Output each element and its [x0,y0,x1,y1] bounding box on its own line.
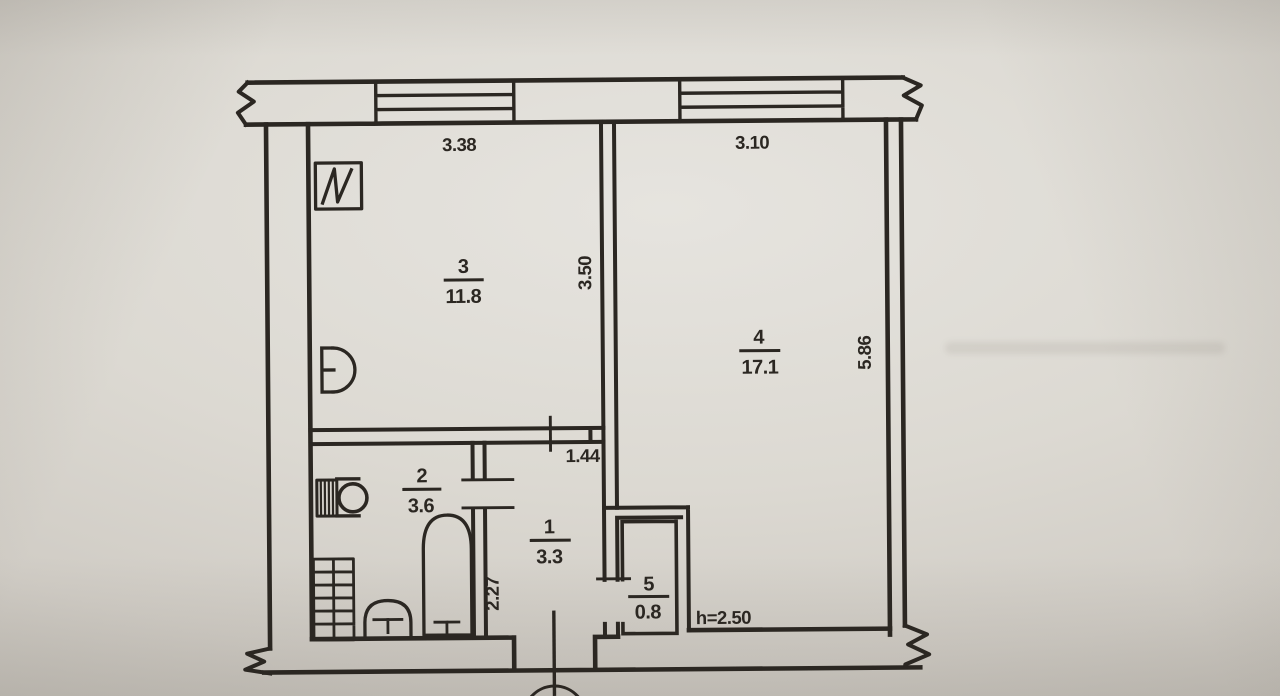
partition-room3-hall [310,428,603,444]
room2-area: 3.6 [408,495,435,517]
room-label-5: 5 0.8 [630,573,668,623]
door-jambs-room2 [463,480,513,508]
photographed-floor-plan: 3.38 3.10 3.50 5.86 1.44 2.27 h=2.50 3 1… [0,0,1280,696]
top-wall [246,77,916,124]
wall-break-bottom-right [905,625,929,667]
wall-break-top-left [238,83,254,125]
dim-hall-depth: 2.27 [482,576,503,610]
wall-break-bottom-left [245,648,270,673]
room2-number: 2 [416,465,427,487]
room1-number: 1 [544,516,555,538]
room4-area: 17.1 [741,356,778,378]
bottom-wall [264,628,920,672]
room5-number: 5 [643,573,654,595]
dim-room4-depth: 5.86 [854,336,875,370]
room5-area: 0.8 [635,601,662,623]
dim-room3-width: 3.38 [442,134,476,155]
washing-machine-icon [317,479,367,516]
windows [376,78,843,124]
room-label-4: 4 17.1 [741,326,779,378]
bathtub-icon [423,515,472,635]
window-room3 [376,81,514,124]
radiator-grid-icon [313,559,354,640]
room4-number: 4 [753,327,765,349]
fixtures [310,162,472,640]
dim-room4-width: 3.10 [735,132,769,153]
dim-hall-width: 1.44 [566,445,601,466]
kitchen-sink-icon [322,348,355,392]
bathtub-drain [435,622,459,632]
ceiling-height-note: h=2.50 [696,607,751,628]
room3-area: 11.8 [445,286,481,308]
partition-room3-room4 [601,122,617,508]
room-label-3: 3 11.8 [445,256,482,308]
vent-grille-icon [315,163,361,209]
entrance-door-leaf [554,612,555,694]
right-wall [886,120,905,635]
room3-number: 3 [458,256,469,278]
toilet-icon [365,600,411,635]
window-room4 [680,78,843,121]
wall-break-top-right [903,77,922,119]
room1-area: 3.3 [536,546,563,568]
dim-room3-depth: 3.50 [574,256,595,290]
left-wall [266,124,312,648]
room-label-1: 1 3.3 [531,516,569,568]
partitions [308,121,689,639]
floor-plan: 3.38 3.10 3.50 5.86 1.44 2.27 h=2.50 3 1… [238,77,930,696]
room-label-2: 2 3.6 [404,465,440,517]
